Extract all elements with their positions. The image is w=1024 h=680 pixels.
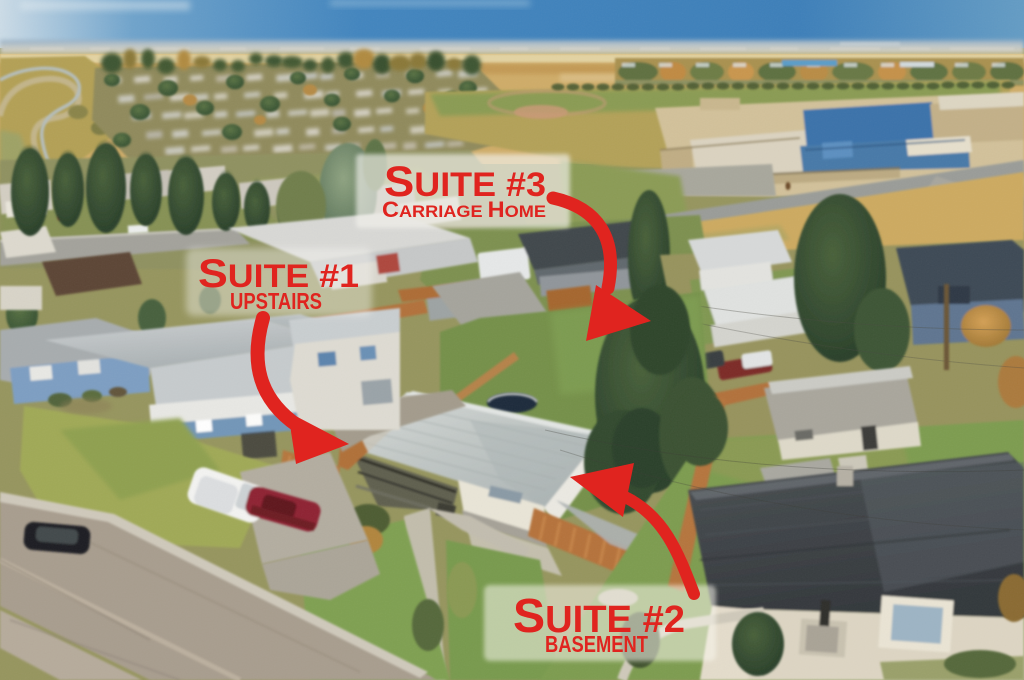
svg-text:BASEMENT: BASEMENT [545,631,648,657]
svg-text:UPSTAIRS: UPSTAIRS [230,288,322,314]
svg-text:SUITE #3: SUITE #3 [384,158,546,206]
